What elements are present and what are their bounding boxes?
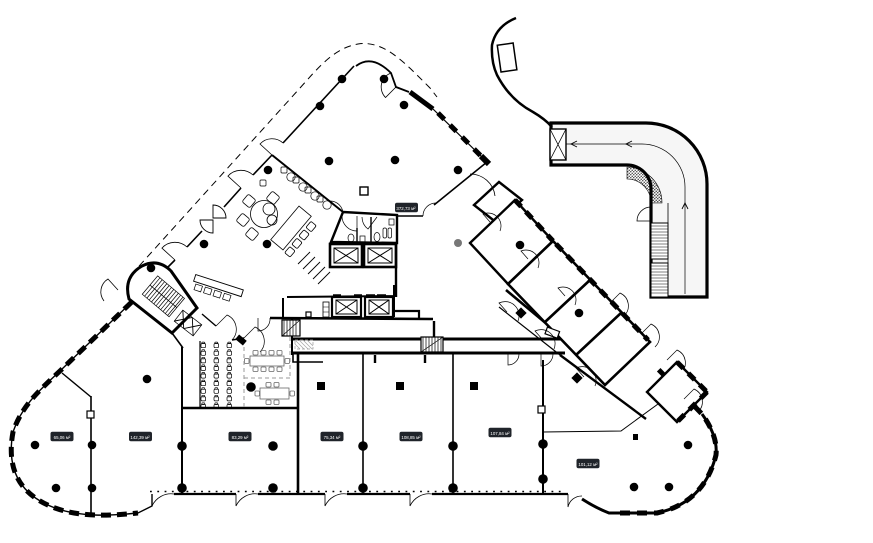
- svg-text:101,12 м²: 101,12 м²: [578, 462, 598, 467]
- svg-text:107,84 м²: 107,84 м²: [490, 431, 510, 436]
- svg-text:108,85 м²: 108,85 м²: [401, 435, 421, 440]
- svg-text:372,73 м²: 372,73 м²: [396, 206, 416, 211]
- svg-text:75,34 м²: 75,34 м²: [324, 435, 341, 440]
- svg-text:142,39 м²: 142,39 м²: [130, 435, 150, 440]
- svg-text:65,06 м²: 65,06 м²: [54, 435, 71, 440]
- svg-text:83,29 м²: 83,29 м²: [232, 435, 249, 440]
